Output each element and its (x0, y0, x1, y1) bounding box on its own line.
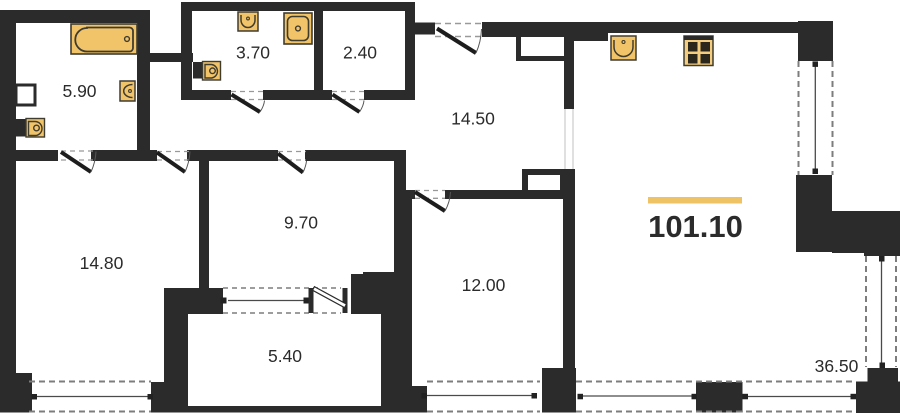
svg-text:101.10: 101.10 (648, 209, 743, 244)
svg-text:36.50: 36.50 (815, 356, 859, 376)
svg-text:14.80: 14.80 (80, 253, 124, 273)
svg-text:14.50: 14.50 (451, 109, 495, 129)
svg-text:2.40: 2.40 (343, 42, 377, 62)
svg-text:5.40: 5.40 (268, 346, 302, 366)
svg-text:5.90: 5.90 (62, 81, 96, 101)
svg-text:9.70: 9.70 (284, 213, 318, 233)
svg-text:3.70: 3.70 (236, 42, 270, 62)
svg-text:12.00: 12.00 (462, 275, 506, 295)
